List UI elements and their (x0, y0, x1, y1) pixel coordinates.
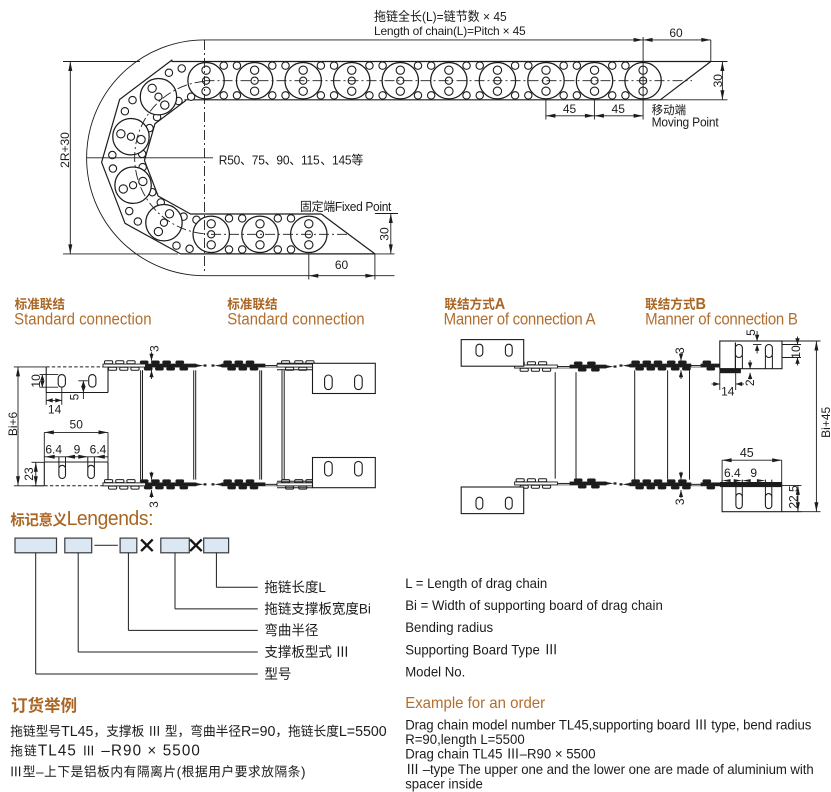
svg-text:Standard connection: Standard connection (227, 311, 364, 329)
svg-text:spacer inside: spacer inside (405, 776, 483, 791)
svg-text:30: 30 (711, 74, 725, 88)
svg-text:L: L (318, 579, 326, 595)
svg-text:23: 23 (22, 467, 36, 481)
svg-text:): ) (301, 763, 306, 779)
svg-text:L=5500: L=5500 (339, 724, 387, 740)
svg-text:Lengends:: Lengends: (67, 508, 153, 530)
svg-text:Drag chain TL45: Drag chain TL45 (405, 746, 506, 761)
svg-text:10: 10 (789, 345, 803, 359)
svg-text:9: 9 (750, 466, 757, 480)
svg-text:6.4: 6.4 (724, 466, 741, 480)
svg-text:× 45: × 45 (480, 9, 507, 24)
svg-text:–R90 × 5500: –R90 × 5500 (96, 742, 201, 759)
svg-text:L = Length of drag chain: L = Length of drag chain (405, 576, 547, 591)
svg-text:30: 30 (377, 227, 391, 241)
svg-text:Bi+45: Bi+45 (819, 406, 831, 437)
svg-text:6.4: 6.4 (45, 443, 62, 457)
svg-text:3: 3 (673, 347, 687, 354)
svg-text:45: 45 (612, 102, 626, 116)
svg-text:2: 2 (743, 379, 757, 386)
svg-text:TL45: TL45 (38, 742, 82, 759)
svg-text:–R90 × 5500: –R90 × 5500 (520, 746, 596, 761)
svg-text:R=90: R=90 (241, 724, 275, 740)
svg-text:Bending radius: Bending radius (405, 620, 493, 635)
svg-text:Fixed Point: Fixed Point (335, 200, 392, 214)
svg-text:Example for an order: Example for an order (405, 694, 545, 711)
svg-text:(L)=: (L)= (422, 9, 444, 24)
svg-text:10: 10 (29, 374, 43, 388)
svg-text:60: 60 (335, 258, 349, 272)
svg-text:145: 145 (332, 153, 352, 167)
svg-text:–type The upper one and the lo: –type The upper one and the lower one ar… (419, 762, 814, 777)
svg-text:75: 75 (252, 153, 265, 167)
svg-text:60: 60 (669, 26, 683, 40)
svg-text:5: 5 (68, 393, 82, 400)
svg-text:45: 45 (563, 102, 577, 116)
svg-text:R=90,length L=5500: R=90,length L=5500 (405, 732, 524, 747)
svg-text:Supporting Board Type: Supporting Board Type (405, 642, 543, 657)
svg-text:90: 90 (276, 153, 289, 167)
svg-text:14: 14 (48, 403, 62, 417)
svg-text:–: – (36, 763, 44, 779)
svg-text:6.4: 6.4 (90, 443, 107, 457)
svg-text:115: 115 (301, 153, 320, 167)
svg-text:Bi: Bi (359, 600, 371, 616)
svg-text:9: 9 (74, 443, 81, 457)
svg-text:Bi+6: Bi+6 (6, 412, 20, 437)
svg-text:5: 5 (744, 329, 758, 336)
svg-text:3: 3 (673, 498, 687, 505)
svg-text:Manner of connection A: Manner of connection A (444, 311, 596, 329)
svg-text:Moving Point: Moving Point (652, 115, 720, 130)
svg-text:R50: R50 (219, 153, 241, 167)
svg-text:22.5: 22.5 (786, 485, 800, 509)
svg-text:Standard connection: Standard connection (14, 311, 151, 329)
svg-text:Length of chain(L)=Pitch × 45: Length of chain(L)=Pitch × 45 (374, 24, 526, 38)
svg-text:14: 14 (721, 385, 735, 399)
svg-text:2R+30: 2R+30 (58, 132, 72, 168)
svg-text:Bi = Width of supporting board: Bi = Width of supporting board of drag c… (405, 598, 663, 613)
svg-text:50: 50 (70, 418, 84, 432)
svg-text:Drag chain model number TL45,s: Drag chain model number TL45,supporting … (405, 717, 694, 732)
svg-text:3: 3 (147, 501, 161, 508)
svg-text:3: 3 (148, 345, 162, 352)
svg-text:45: 45 (740, 446, 754, 460)
svg-text:TL45: TL45 (61, 724, 93, 740)
svg-text:type, bend radius: type, bend radius (708, 717, 812, 732)
svg-text:Manner of connection B: Manner of connection B (645, 311, 798, 329)
svg-text:(: ( (177, 763, 182, 779)
svg-text:Model No.: Model No. (405, 664, 465, 679)
